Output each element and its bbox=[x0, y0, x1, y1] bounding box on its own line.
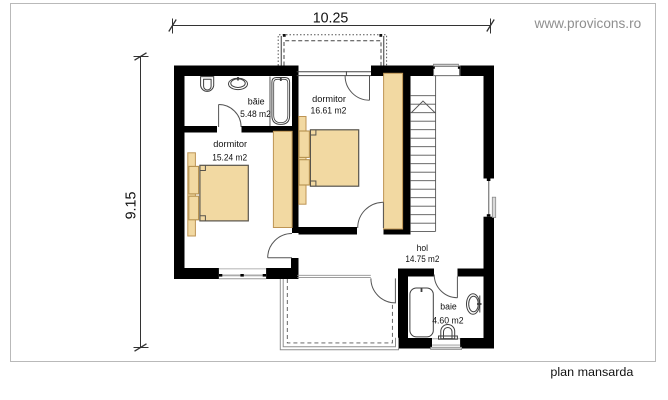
svg-text:9.15: 9.15 bbox=[124, 192, 140, 220]
svg-text:baie: baie bbox=[440, 302, 457, 313]
svg-text:14.75 m2: 14.75 m2 bbox=[405, 254, 439, 265]
svg-text:băie: băie bbox=[248, 97, 265, 108]
svg-text:16.61 m2: 16.61 m2 bbox=[311, 106, 347, 117]
svg-text:plan mansarda: plan mansarda bbox=[550, 365, 633, 379]
svg-text:15.24 m2: 15.24 m2 bbox=[212, 153, 247, 164]
svg-text:www.provicons.ro: www.provicons.ro bbox=[533, 16, 641, 31]
svg-text:5.48 m2: 5.48 m2 bbox=[240, 109, 271, 120]
svg-text:4.60 m2: 4.60 m2 bbox=[432, 315, 463, 326]
svg-text:dormitor: dormitor bbox=[312, 94, 347, 105]
svg-text:hol: hol bbox=[417, 243, 428, 254]
svg-text:10.25: 10.25 bbox=[313, 11, 349, 27]
svg-text:dormitor: dormitor bbox=[213, 139, 248, 150]
